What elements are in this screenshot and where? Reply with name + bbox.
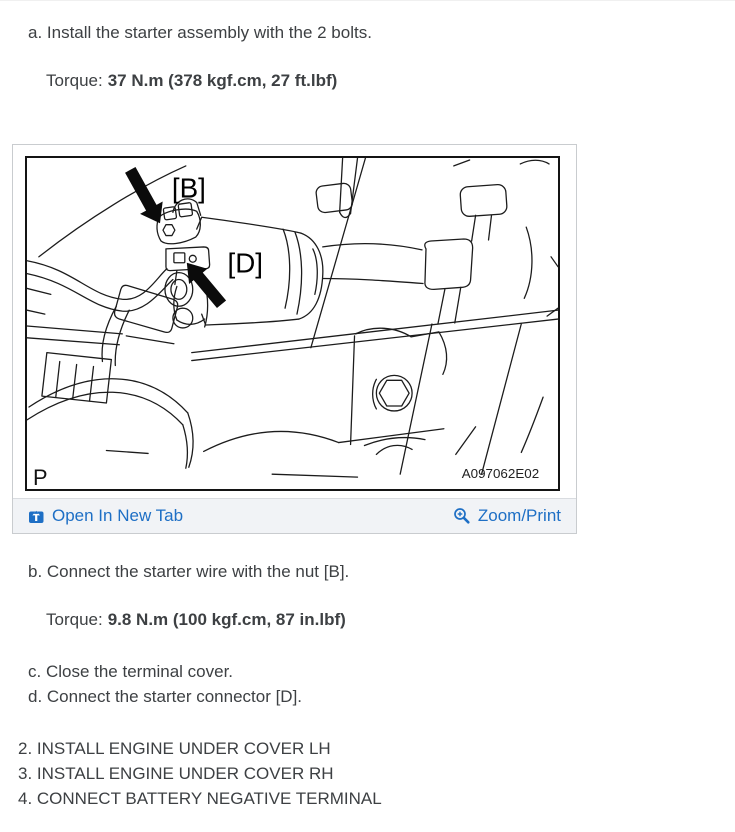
torque-b-label: Torque:	[46, 610, 103, 629]
open-in-new-tab-icon	[28, 508, 45, 524]
step-c-text: c. Close the terminal cover.	[28, 660, 233, 684]
starter-diagram-image: [B] [D] P A097062E02	[25, 156, 560, 491]
starter-diagram: [B] [D] P A097062E02	[27, 158, 558, 489]
torque-a-label: Torque:	[46, 71, 103, 90]
numbered-step-3: 3. INSTALL ENGINE UNDER COVER RH	[18, 761, 334, 786]
arrow-to-b	[125, 167, 163, 223]
figure-toolbar: Open In New Tab Zoom/Print	[13, 498, 576, 533]
numbered-step-2: 2. INSTALL ENGINE UNDER COVER LH	[18, 736, 331, 761]
step-b-text: b. Connect the starter wire with the nut…	[28, 560, 349, 584]
zoom-print-label: Zoom/Print	[478, 506, 561, 526]
step-a-text: a. Install the starter assembly with the…	[28, 21, 372, 45]
label-d: [D]	[227, 248, 263, 279]
torque-b-value: 9.8 N.m (100 kgf.cm, 87 in.lbf)	[108, 610, 346, 629]
open-in-new-tab-link[interactable]: Open In New Tab	[28, 506, 183, 526]
figure-panel: [B] [D] P A097062E02 Open In New Tab Zoo…	[12, 144, 577, 534]
zoom-print-link[interactable]: Zoom/Print	[453, 506, 561, 526]
torque-a-line: Torque:37 N.m (378 kgf.cm, 27 ft.lbf)	[46, 71, 337, 91]
magnifier-plus-icon	[453, 507, 471, 525]
step-d-text: d. Connect the starter connector [D].	[28, 685, 302, 709]
numbered-step-4: 4. CONNECT BATTERY NEGATIVE TERMINAL	[18, 786, 382, 811]
open-in-new-tab-label: Open In New Tab	[52, 506, 183, 526]
label-b: [B]	[172, 173, 206, 204]
torque-b-line: Torque:9.8 N.m (100 kgf.cm, 87 in.lbf)	[46, 610, 346, 630]
torque-a-value: 37 N.m (378 kgf.cm, 27 ft.lbf)	[108, 71, 338, 90]
figure-code: A097062E02	[462, 466, 539, 481]
corner-mark: P	[33, 465, 48, 489]
